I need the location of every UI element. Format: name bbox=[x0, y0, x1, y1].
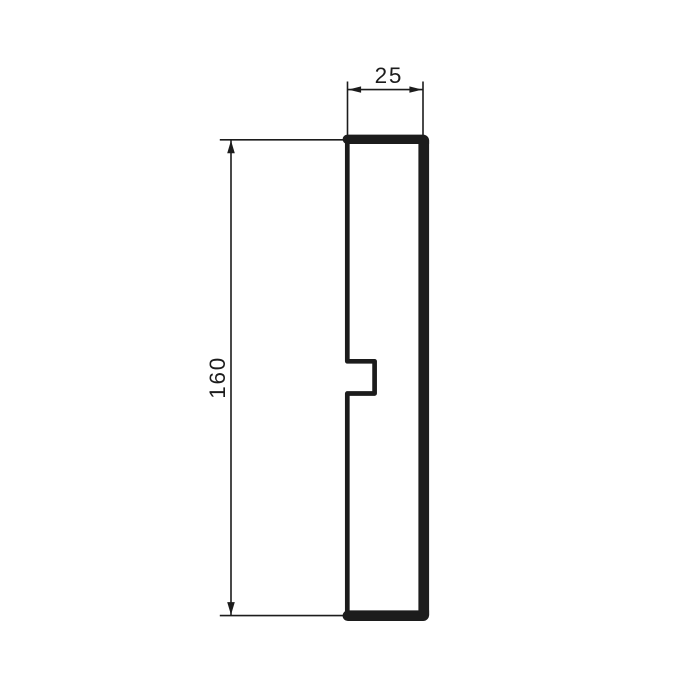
svg-text:160: 160 bbox=[205, 356, 230, 399]
svg-text:25: 25 bbox=[375, 63, 403, 88]
